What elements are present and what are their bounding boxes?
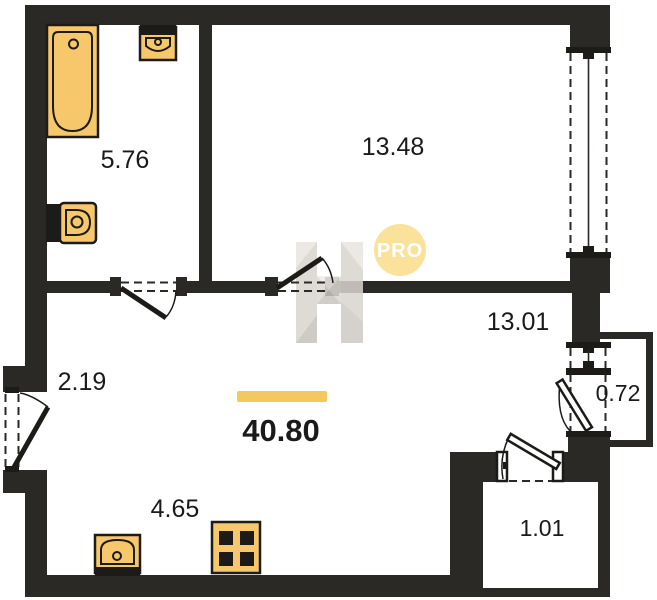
wall-right-top-block xyxy=(570,5,610,50)
wall-right-above-balcony xyxy=(572,280,600,343)
wall-divider-bathroom-bedroom xyxy=(199,25,212,281)
wall-interior-b xyxy=(187,281,265,293)
jamb-bathroom-left xyxy=(110,277,121,296)
window-tick-bottom xyxy=(583,246,594,254)
label-living-area: 13.01 xyxy=(487,308,550,336)
label-balcony-area: 0.72 xyxy=(596,380,641,406)
wall-bottom xyxy=(25,575,450,597)
wall-interior-a xyxy=(45,281,117,293)
label-bathroom-area: 5.76 xyxy=(101,146,150,174)
pro-badge: PRO xyxy=(374,224,426,276)
balcony-sill-mid xyxy=(566,368,611,375)
window-tick-top xyxy=(583,51,594,59)
kitchen-sink xyxy=(95,535,140,576)
wall-closet-top-right xyxy=(562,452,598,482)
wall-right-lower xyxy=(598,452,610,597)
stove xyxy=(212,522,260,573)
label-kitchen-area: 4.65 xyxy=(151,495,200,523)
wall-left-upper xyxy=(25,5,47,368)
label-closet-area: 1.01 xyxy=(520,515,565,541)
pro-badge-text: PRO xyxy=(377,240,423,262)
floor-plan-canvas: PRO xyxy=(0,0,657,600)
floor-plan: PRO xyxy=(0,0,657,600)
balcony-wall-right xyxy=(646,332,653,447)
wall-interior-c xyxy=(339,281,572,293)
balcony-sill-bottom xyxy=(566,431,611,437)
wall-entry-jamb-bottom xyxy=(3,470,47,493)
label-total-area: 40.80 xyxy=(242,413,320,448)
toilet xyxy=(46,203,96,243)
label-bedroom-area: 13.48 xyxy=(362,133,425,161)
total-area-accent-bar xyxy=(237,391,327,402)
wall-closet-left xyxy=(450,452,483,597)
wall-sink xyxy=(140,25,176,60)
bathtub xyxy=(47,25,98,137)
label-hallway-area: 2.19 xyxy=(58,368,107,396)
balcony-wall-bottom xyxy=(600,440,653,447)
balcony-wall-top xyxy=(600,332,653,339)
balcony-tick-mid xyxy=(583,361,594,368)
wall-closet-bottom xyxy=(483,588,598,597)
jamb-bathroom-right xyxy=(176,277,187,296)
wall-top xyxy=(25,5,610,25)
